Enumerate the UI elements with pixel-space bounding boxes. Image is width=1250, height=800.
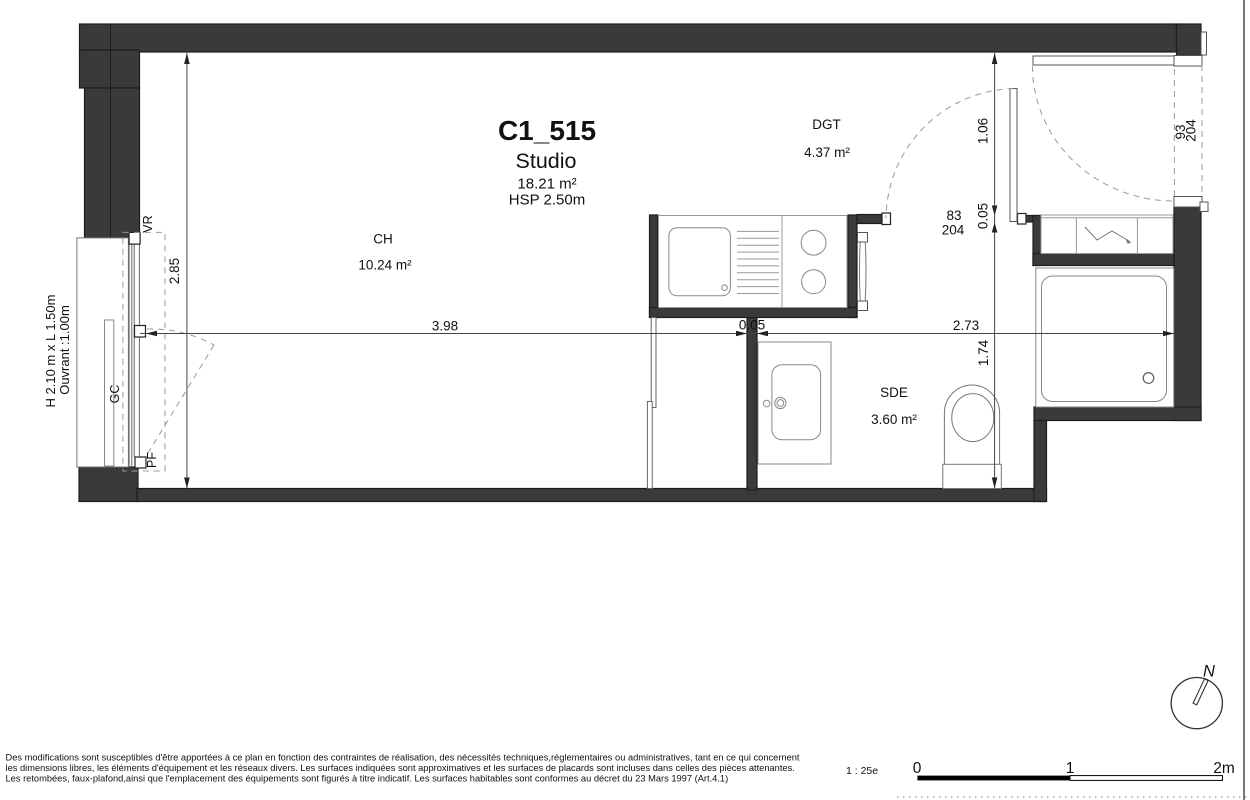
svg-text:Ouvrant :1.00m: Ouvrant :1.00m <box>57 305 72 395</box>
svg-text:2.85: 2.85 <box>167 258 182 284</box>
svg-text:Des modifications sont suscept: Des modifications sont susceptibles d'êt… <box>6 753 800 763</box>
svg-text:CH: CH <box>373 232 393 247</box>
svg-text:1 : 25e: 1 : 25e <box>846 765 878 777</box>
svg-text:204: 204 <box>942 223 965 238</box>
svg-text:3.98: 3.98 <box>432 319 458 334</box>
svg-text:DGT: DGT <box>812 117 841 132</box>
svg-text:83: 83 <box>946 208 961 223</box>
svg-text:4.37 m²: 4.37 m² <box>804 145 850 160</box>
svg-text:10.24 m²: 10.24 m² <box>358 258 412 273</box>
svg-text:PF: PF <box>145 452 159 468</box>
svg-text:H 2.10 m x L 1.50m: H 2.10 m x L 1.50m <box>43 295 58 408</box>
svg-text:0.05: 0.05 <box>739 318 765 333</box>
svg-text:Les retombées, faux-plafond,ai: Les retombées, faux-plafond,ainsi que l'… <box>6 774 729 784</box>
svg-text:2.73: 2.73 <box>953 318 979 333</box>
svg-text:les dimensions libres, les élé: les dimensions libres, les éléments d'éq… <box>6 763 795 773</box>
svg-text:2m: 2m <box>1213 760 1235 777</box>
svg-text:0: 0 <box>913 760 922 777</box>
svg-text:C1_515: C1_515 <box>498 115 596 146</box>
svg-text:0.05: 0.05 <box>976 203 991 229</box>
svg-text:GC: GC <box>108 385 122 404</box>
svg-text:SDE: SDE <box>880 385 908 400</box>
svg-text:18.21 m²: 18.21 m² <box>517 176 576 193</box>
svg-text:N: N <box>1203 663 1215 681</box>
svg-text:1.06: 1.06 <box>976 118 991 144</box>
svg-text:1: 1 <box>1066 760 1075 777</box>
svg-text:Studio: Studio <box>516 149 577 173</box>
svg-text:VR: VR <box>141 215 155 232</box>
svg-text:HSP 2.50m: HSP 2.50m <box>509 192 585 209</box>
svg-text:3.60 m²: 3.60 m² <box>871 412 917 427</box>
svg-text:204: 204 <box>1184 119 1199 142</box>
svg-text:1.74: 1.74 <box>976 339 991 366</box>
